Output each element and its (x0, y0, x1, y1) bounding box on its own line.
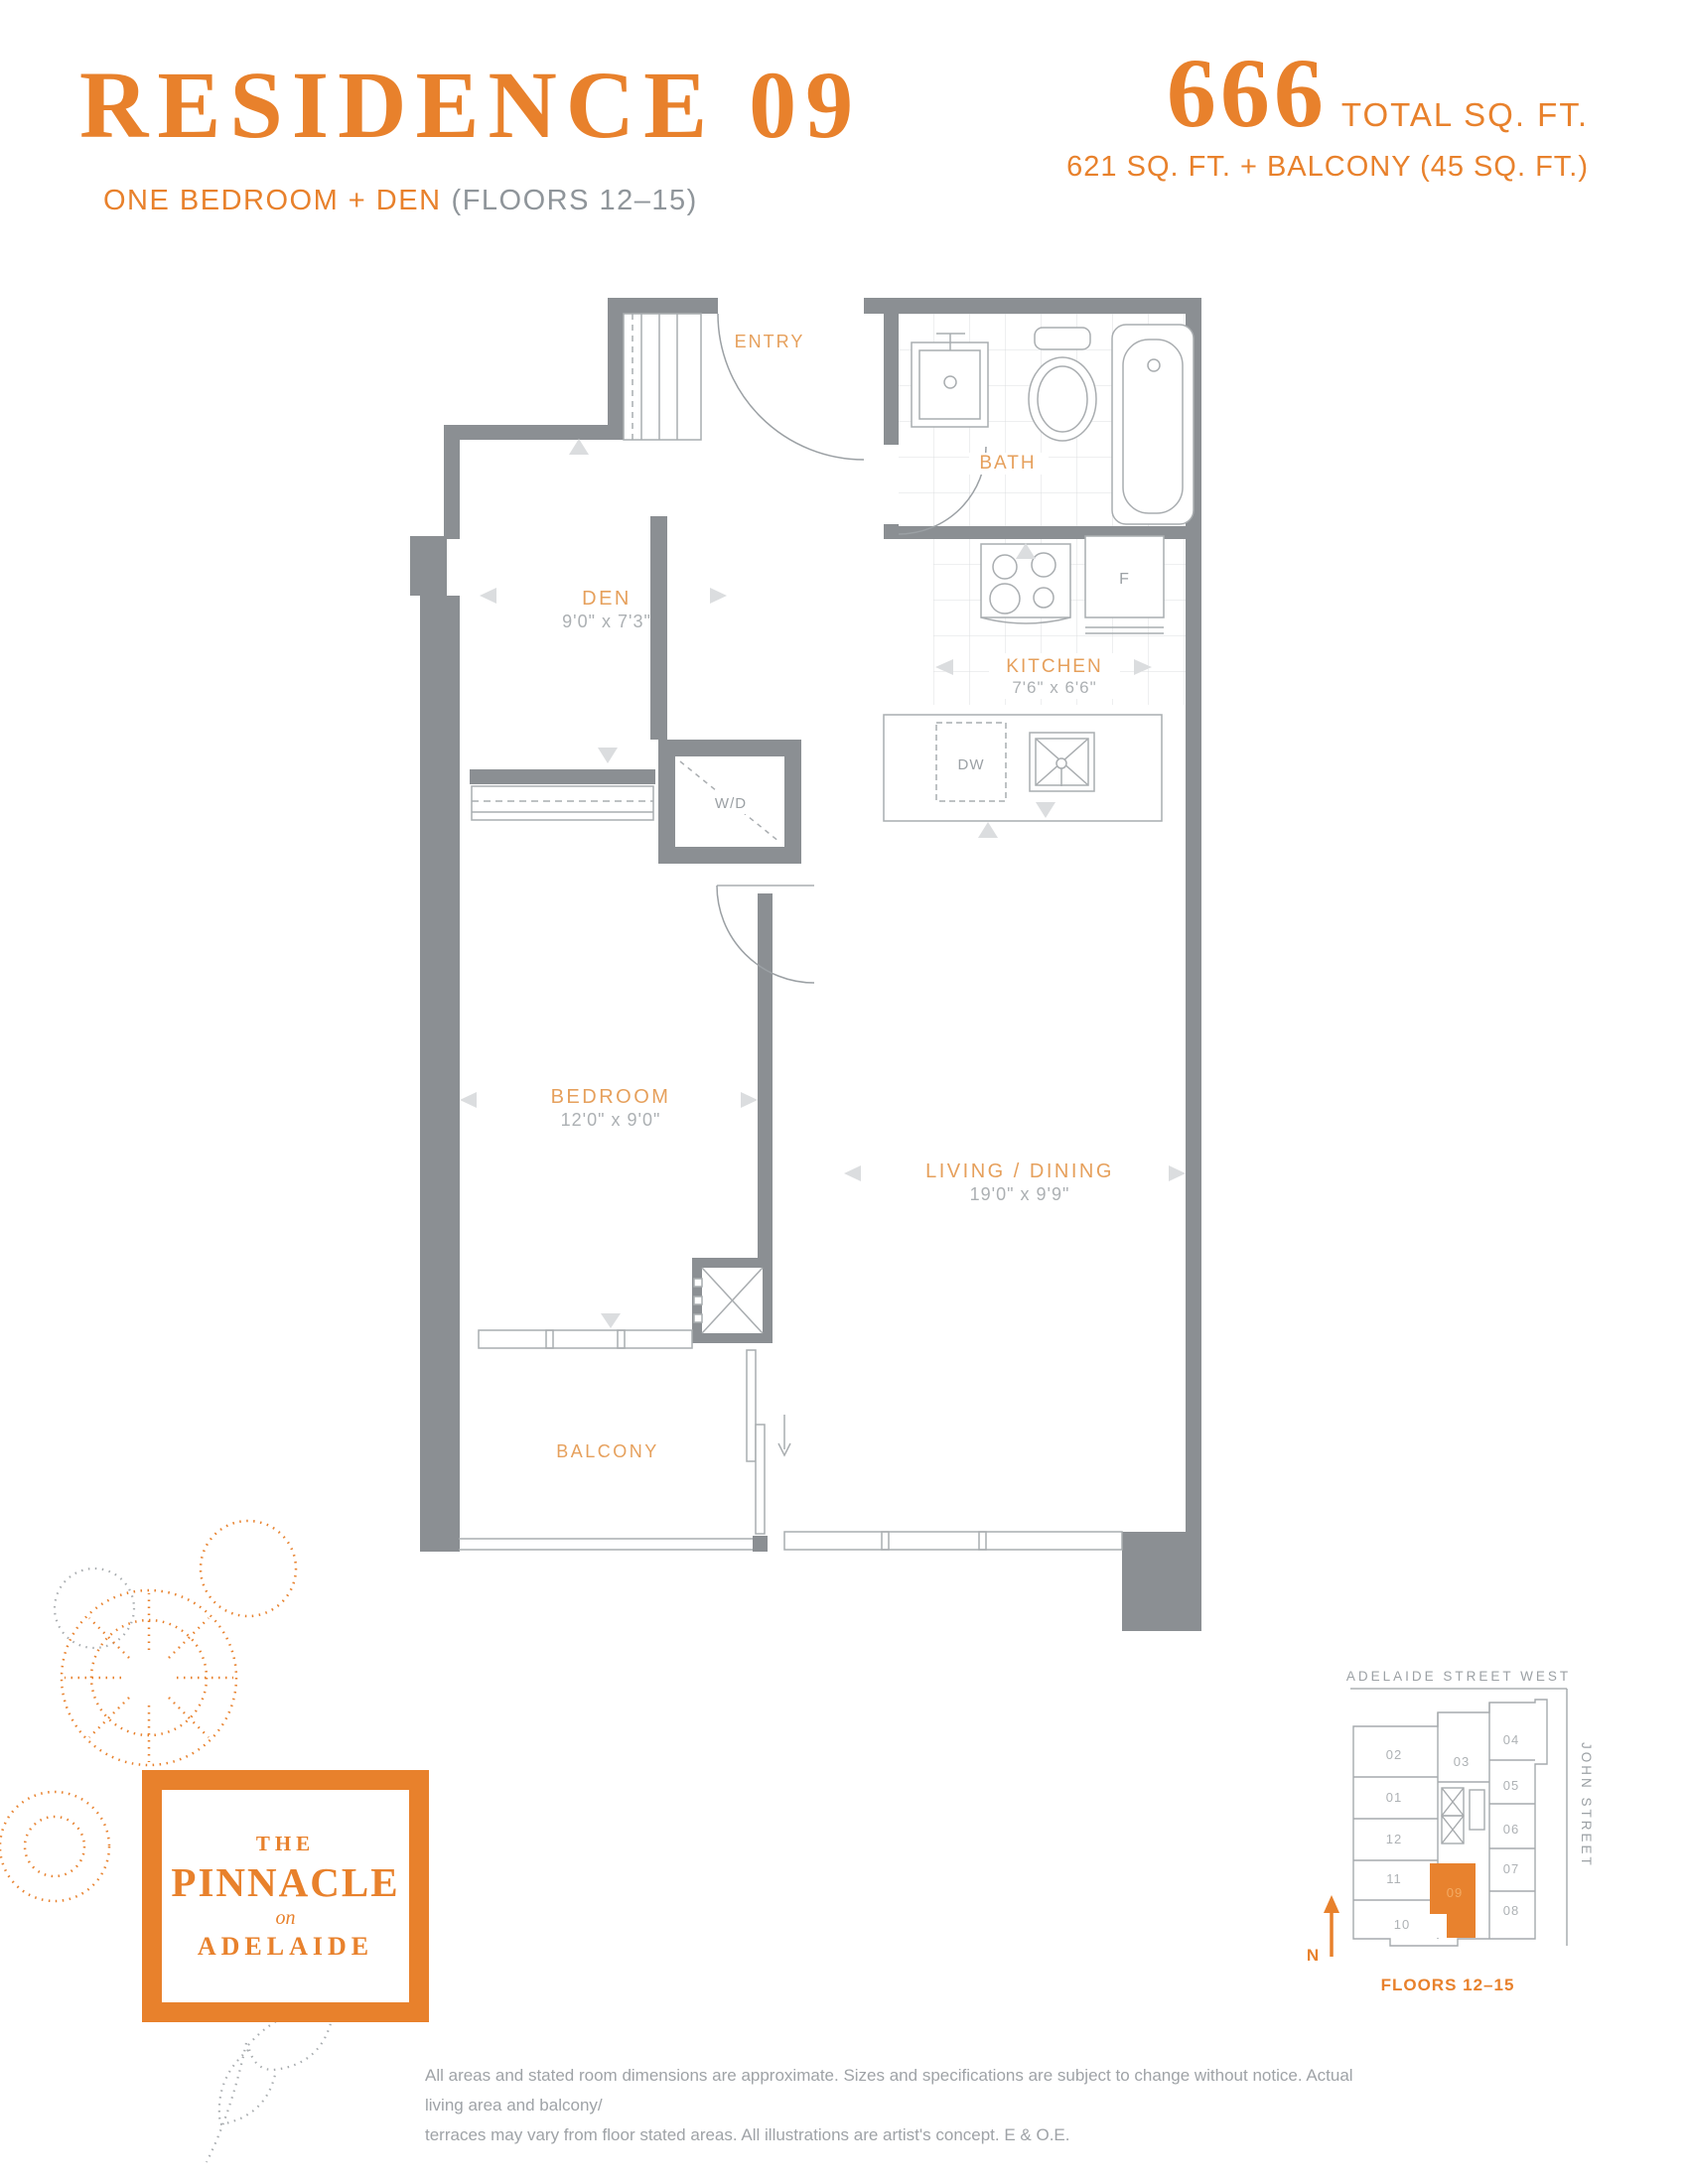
unit-12: 12 (1386, 1832, 1402, 1846)
subtitle-floors: (FLOORS 12–15) (452, 185, 698, 216)
kitchen-sink (1030, 733, 1094, 791)
bedroom-dims: 12'0" x 9'0" (561, 1110, 661, 1130)
total-sqft-label: TOTAL SQ. FT. (1341, 96, 1589, 134)
balcony-sliding-door (747, 1350, 765, 1534)
living-dining-label: LIVING / DINING (925, 1160, 1114, 1182)
page-title: RESIDENCE 09 (79, 50, 862, 160)
pinnacle-logo: THE PINNACLE on ADELAIDE (142, 1770, 429, 2022)
kitchen-counter (884, 715, 1162, 821)
logo-word-pinnacle: PINNACLE (171, 1858, 399, 1906)
logo-word-the: THE (256, 1832, 315, 1856)
street-right-label: JOHN STREET (1579, 1742, 1594, 1868)
unit-11: 11 (1386, 1871, 1402, 1886)
disclaimer-line-2: terraces may vary from floor stated area… (425, 2120, 1378, 2150)
washer-dryer-label: W/D (715, 795, 747, 812)
bedroom-windows (479, 1330, 692, 1348)
unit-06: 06 (1503, 1822, 1519, 1837)
fridge-label: F (1119, 571, 1129, 588)
entry-label: ENTRY (735, 332, 805, 351)
key-plan: ADELAIDE STREET WEST JOHN STREET 02 03 0… (1291, 1643, 1609, 2010)
bathtub (1112, 325, 1194, 524)
balcony-access-arrow (778, 1415, 790, 1455)
kitchen-label: KITCHEN (1006, 656, 1102, 677)
unit-03: 03 (1454, 1754, 1470, 1769)
subtitle-room-type: ONE BEDROOM + DEN (103, 185, 442, 216)
den-dims: 9'0" x 7'3" (562, 612, 651, 631)
area-breakdown: 621 SQ. FT. + BALCONY (45 SQ. FT.) (1066, 151, 1589, 184)
bath-sink (912, 334, 988, 427)
bedroom-closet (472, 786, 653, 820)
total-sqft-value: 666 (1167, 44, 1328, 143)
disclaimer-line-1: All areas and stated room dimensions are… (425, 2061, 1378, 2120)
floors-label: FLOORS 12–15 (1381, 1976, 1515, 1994)
street-top-label: ADELAIDE STREET WEST (1346, 1669, 1571, 1684)
entry-closet (624, 314, 701, 440)
unit-04: 04 (1503, 1732, 1519, 1747)
unit-09-label: 09 (1447, 1885, 1463, 1900)
toilet (1029, 328, 1096, 441)
bedroom-label: BEDROOM (551, 1086, 671, 1108)
living-dining-dims: 19'0" x 9'9" (970, 1184, 1070, 1204)
area-stats: 666 TOTAL SQ. FT. 621 SQ. FT. + BALCONY … (1066, 44, 1589, 184)
living-windows (784, 1532, 1122, 1550)
balcony-label: BALCONY (556, 1441, 659, 1461)
unit-01: 01 (1386, 1790, 1402, 1805)
unit-08: 08 (1503, 1903, 1519, 1918)
balcony-railing (459, 1539, 753, 1550)
floor-plan: ENTRY BATH DEN 9'0" x 7'3" KITCHEN 7'6" … (397, 278, 1211, 1648)
page-subtitle: ONE BEDROOM + DEN(FLOORS 12–15) (103, 185, 698, 217)
unit-07: 07 (1503, 1861, 1519, 1876)
unit-09-notch (1430, 1914, 1447, 1938)
north-arrow: N (1307, 1895, 1339, 1965)
dishwasher-label: DW (958, 756, 985, 773)
unit-05: 05 (1503, 1778, 1519, 1793)
north-label: N (1307, 1946, 1319, 1965)
kitchen-dims: 7'6" x 6'6" (1012, 678, 1096, 697)
den-label: DEN (582, 588, 632, 610)
unit-02: 02 (1386, 1747, 1402, 1762)
logo-word-on: on (276, 1907, 296, 1930)
unit-10: 10 (1394, 1917, 1410, 1932)
logo-word-adelaide: ADELAIDE (198, 1932, 373, 1962)
disclaimer: All areas and stated room dimensions are… (425, 2061, 1378, 2149)
bath-label: BATH (979, 453, 1036, 474)
